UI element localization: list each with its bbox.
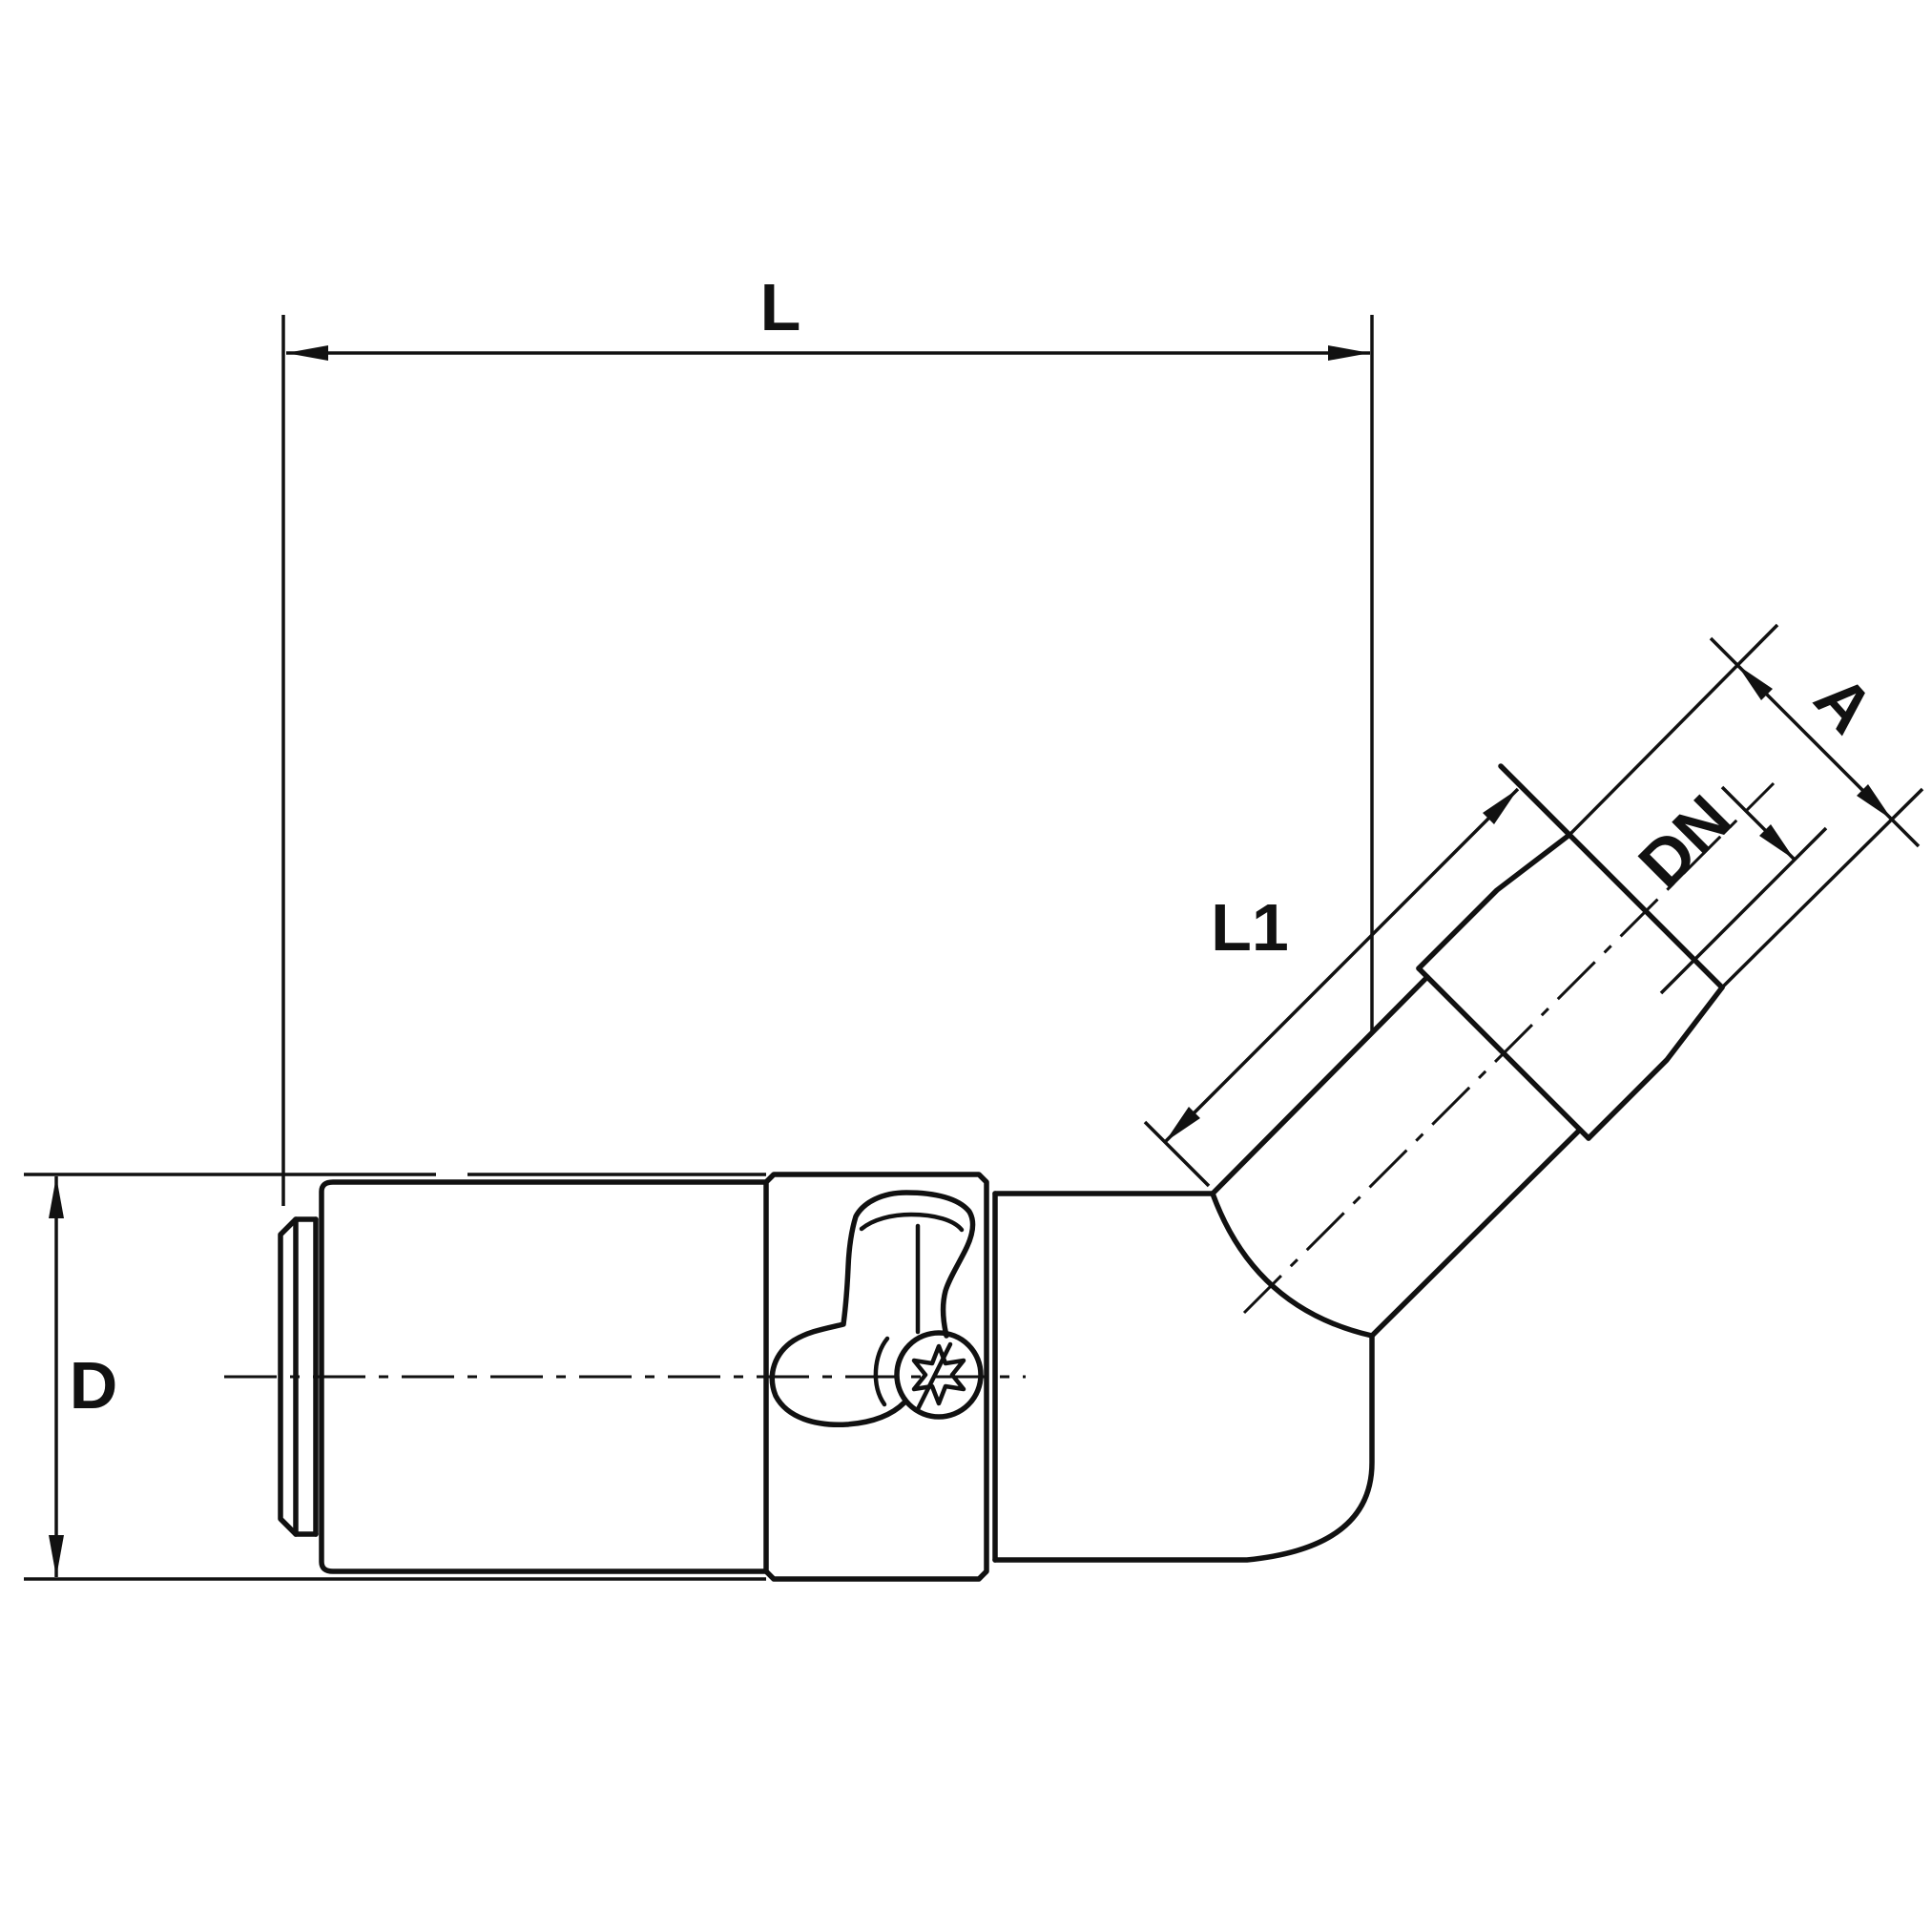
lever-inner-arc: [862, 1215, 962, 1230]
dimension-body-diameter: D: [24, 1174, 766, 1579]
dim-l-arrow-right: [1328, 345, 1370, 361]
fitting-body: [280, 766, 1722, 1579]
dim-l1-label: L1: [1211, 890, 1289, 965]
dim-d-label: D: [70, 1348, 118, 1423]
dimension-nominal-diameter: DN: [1625, 781, 1826, 993]
lever-hole-rim: [876, 1339, 887, 1404]
dim-l-arrow-left: [286, 345, 328, 361]
dim-a-label: A: [1800, 661, 1888, 747]
dim-dn-label: DN: [1625, 781, 1746, 903]
dim-l1-line: [1165, 789, 1518, 1142]
thread-crest-upper: [1419, 835, 1569, 968]
fitting-technical-drawing: L D L1 A DN: [0, 0, 1932, 1932]
thread-crest-lower: [1589, 987, 1722, 1138]
dimension-overall-length: L: [283, 270, 1372, 1206]
dim-d-arrow-top: [49, 1176, 64, 1218]
pipe-lower-edge: [1372, 1130, 1580, 1336]
release-lever-assembly: [772, 1193, 981, 1424]
torx-star-icon: [914, 1346, 964, 1403]
dim-l-label: L: [760, 270, 801, 344]
dim-d-arrow-bottom: [49, 1535, 64, 1577]
body-right-face: [995, 1336, 1372, 1560]
drawing-canvas: L D L1 A DN: [0, 0, 1932, 1932]
centerlines: [224, 783, 1774, 1377]
dimension-elbow-length: L1: [1145, 789, 1518, 1186]
